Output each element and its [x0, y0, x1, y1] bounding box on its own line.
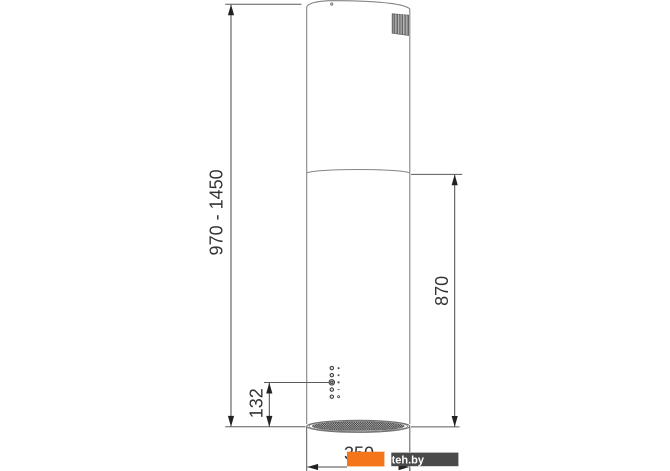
svg-text:870: 870: [432, 276, 452, 306]
svg-text:970 - 1450: 970 - 1450: [207, 169, 227, 255]
svg-text:teh.by: teh.by: [392, 454, 425, 466]
svg-text:132: 132: [246, 388, 266, 418]
